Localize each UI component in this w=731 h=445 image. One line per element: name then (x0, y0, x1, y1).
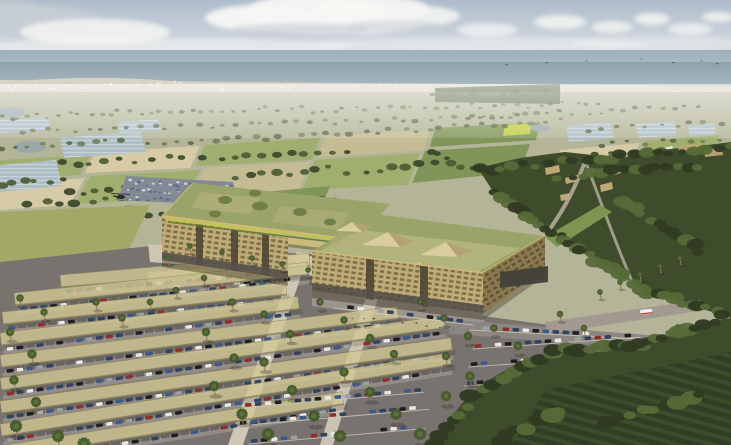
sea-haze (0, 50, 731, 62)
distance-haze (0, 92, 731, 138)
aerial-rendering (0, 0, 731, 445)
rendering-canvas (0, 0, 731, 445)
